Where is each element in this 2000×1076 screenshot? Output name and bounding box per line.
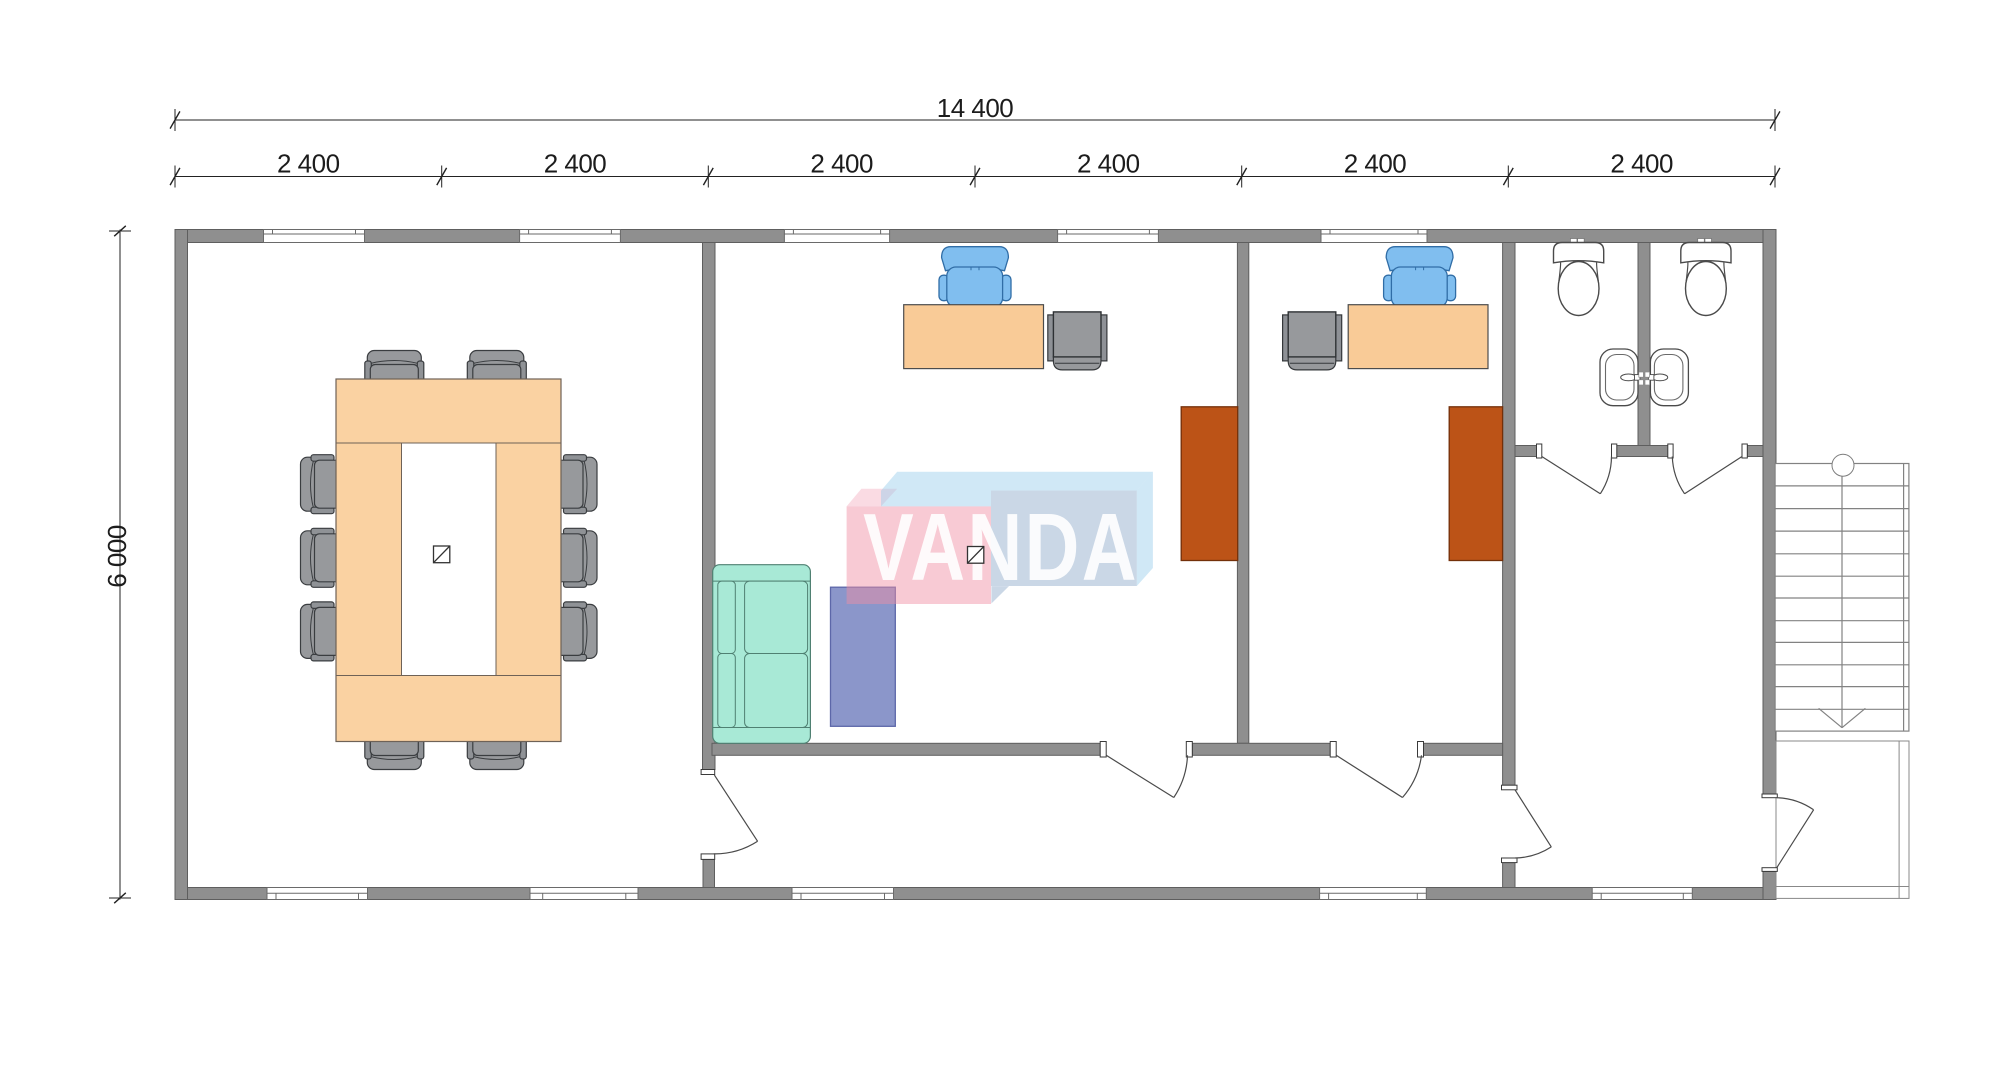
svg-text:2 400: 2 400 (810, 149, 873, 179)
svg-text:VANDA: VANDA (863, 495, 1139, 602)
svg-text:2 400: 2 400 (544, 149, 607, 179)
svg-text:14 400: 14 400 (937, 93, 1014, 123)
svg-text:2 400: 2 400 (1610, 149, 1673, 179)
svg-text:2 400: 2 400 (277, 149, 340, 179)
svg-text:6 000: 6 000 (102, 525, 132, 588)
svg-text:2 400: 2 400 (1077, 149, 1140, 179)
svg-text:2 400: 2 400 (1344, 149, 1407, 179)
